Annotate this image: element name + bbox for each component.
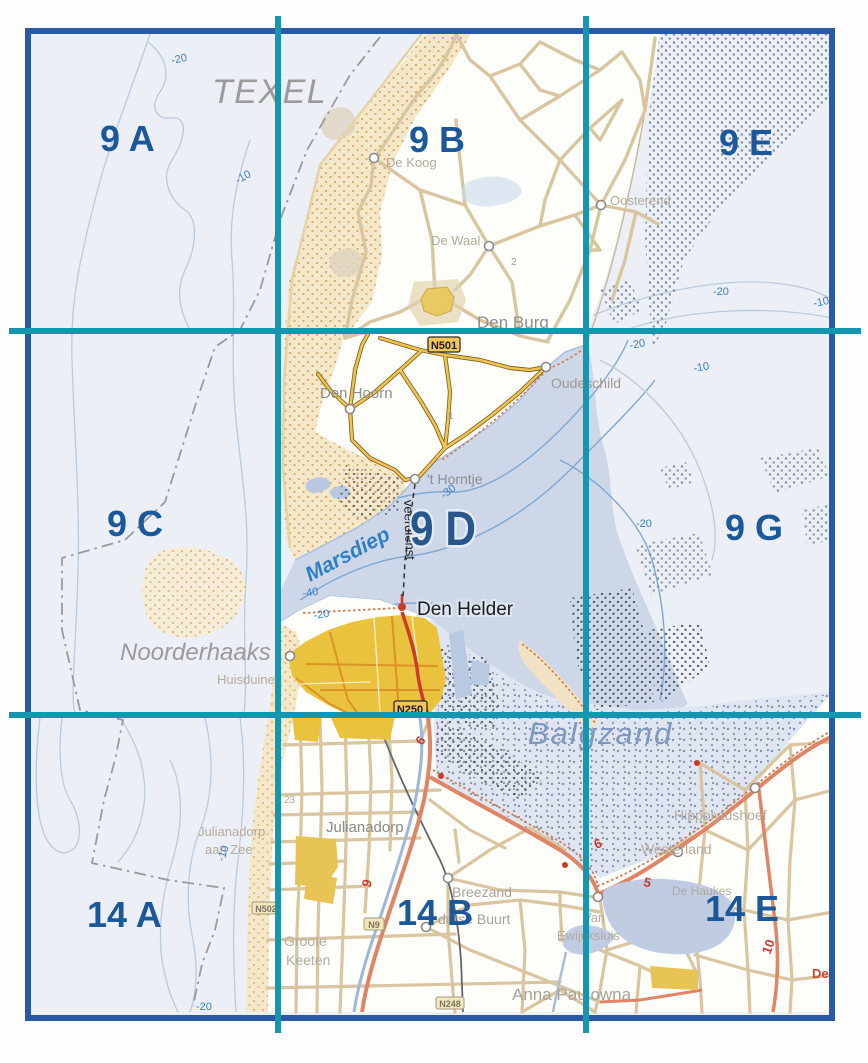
svg-text:'t Horntje: 't Horntje <box>427 471 483 487</box>
svg-text:14 B: 14 B <box>397 892 473 933</box>
svg-text:9 C: 9 C <box>107 503 163 544</box>
svg-text:Julianadorp: Julianadorp <box>198 824 265 839</box>
svg-text:N9: N9 <box>368 920 380 930</box>
svg-text:De Waal: De Waal <box>431 233 480 248</box>
svg-text:-20: -20 <box>636 518 652 530</box>
svg-text:Oosterend: Oosterend <box>610 193 671 208</box>
svg-text:-20: -20 <box>196 1001 212 1013</box>
svg-text:Westerland: Westerland <box>641 841 712 857</box>
svg-text:Huisduinen: Huisduinen <box>217 672 282 687</box>
svg-text:-20: -20 <box>713 286 729 298</box>
svg-text:De: De <box>812 966 829 981</box>
svg-text:9 D: 9 D <box>410 503 476 556</box>
svg-text:-20: -20 <box>313 608 330 622</box>
svg-text:Hippolytushoef: Hippolytushoef <box>674 807 767 823</box>
svg-text:N501: N501 <box>431 340 457 352</box>
svg-text:Den Hoorn: Den Hoorn <box>320 385 393 402</box>
svg-text:23: 23 <box>284 795 296 806</box>
svg-text:-40: -40 <box>302 586 319 600</box>
svg-text:N502: N502 <box>255 904 277 914</box>
svg-text:Keeten: Keeten <box>286 952 330 968</box>
svg-text:9 A: 9 A <box>100 118 155 159</box>
svg-text:Groote: Groote <box>284 933 327 949</box>
svg-text:Balgzand: Balgzand <box>528 716 673 751</box>
svg-text:N248: N248 <box>439 999 461 1009</box>
svg-text:14 A: 14 A <box>87 894 162 935</box>
svg-text:9 E: 9 E <box>719 122 773 163</box>
svg-text:Noorderhaaks: Noorderhaaks <box>120 639 271 666</box>
svg-text:Julianadorp: Julianadorp <box>326 819 404 836</box>
svg-text:Den Helder: Den Helder <box>417 599 514 620</box>
svg-text:2: 2 <box>511 257 517 268</box>
svg-text:TEXEL: TEXEL <box>212 73 327 111</box>
svg-text:Anna Paulowna: Anna Paulowna <box>512 985 632 1004</box>
svg-text:9 B: 9 B <box>409 119 465 160</box>
svg-text:9 G: 9 G <box>725 507 783 548</box>
svg-text:14 E: 14 E <box>705 888 779 929</box>
svg-text:1: 1 <box>448 411 454 422</box>
